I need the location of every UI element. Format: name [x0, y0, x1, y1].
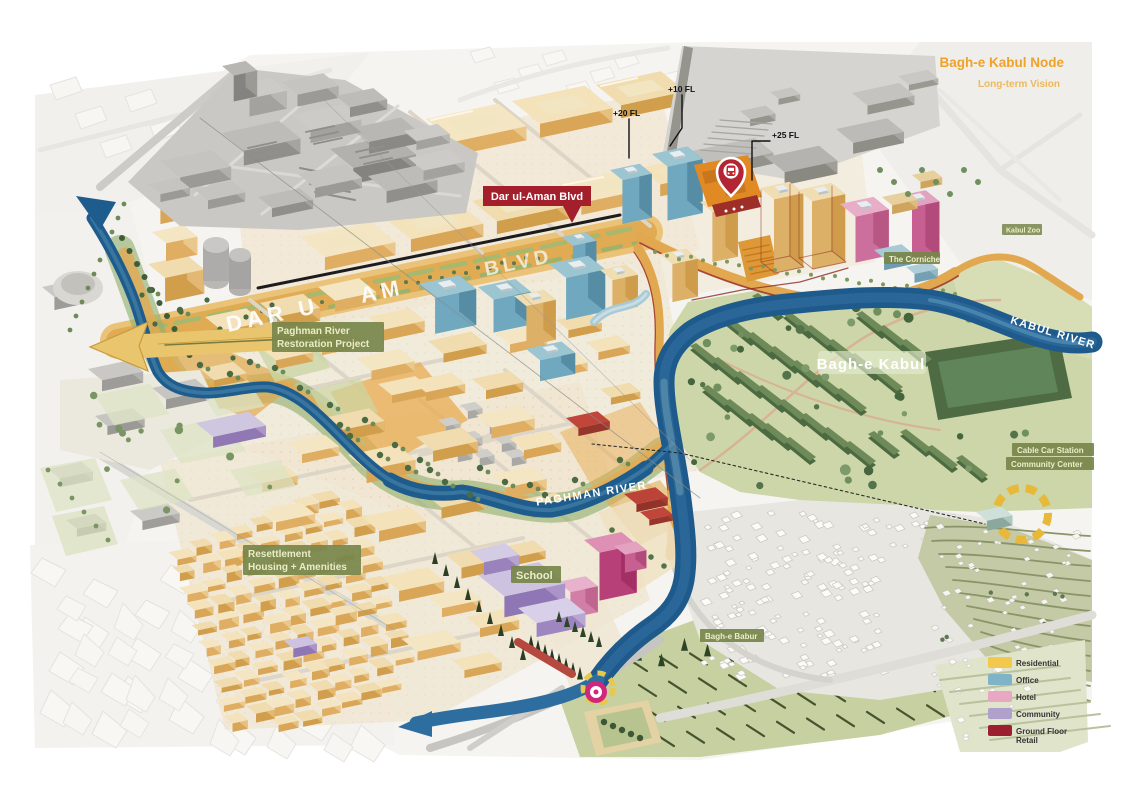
svg-text:+25 FL: +25 FL — [772, 130, 799, 140]
svg-text:Resettlement: Resettlement — [248, 549, 311, 560]
svg-text:Bagh-e Babur: Bagh-e Babur — [705, 632, 757, 641]
svg-text:+10 FL: +10 FL — [668, 84, 695, 94]
svg-text:Community Center: Community Center — [1011, 460, 1083, 469]
svg-text:Dar ul-Aman Blvd: Dar ul-Aman Blvd — [491, 191, 583, 203]
svg-text:The Corniche: The Corniche — [889, 255, 941, 264]
svg-text:Retail: Retail — [1016, 736, 1038, 745]
svg-text:Bagh-e Kabul Node: Bagh-e Kabul Node — [939, 55, 1064, 70]
svg-text:Kabul Zoo: Kabul Zoo — [1006, 228, 1040, 235]
svg-text:Paghman River: Paghman River — [277, 326, 350, 337]
svg-text:Cable Car Station: Cable Car Station — [1017, 446, 1084, 455]
svg-text:Residential: Residential — [1016, 659, 1059, 668]
svg-text:Bagh-e Kabul: Bagh-e Kabul — [817, 356, 926, 373]
svg-text:School: School — [516, 570, 553, 582]
svg-text:Restoration Project: Restoration Project — [277, 339, 370, 350]
svg-text:Community: Community — [1016, 710, 1061, 719]
svg-text:Hotel: Hotel — [1016, 693, 1036, 702]
svg-text:+20 FL: +20 FL — [613, 108, 640, 118]
svg-text:Ground Floor: Ground Floor — [1016, 727, 1067, 736]
svg-text:Long-term Vision: Long-term Vision — [978, 79, 1060, 90]
svg-text:Office: Office — [1016, 676, 1039, 685]
svg-text:Housing + Amenities: Housing + Amenities — [248, 562, 347, 573]
